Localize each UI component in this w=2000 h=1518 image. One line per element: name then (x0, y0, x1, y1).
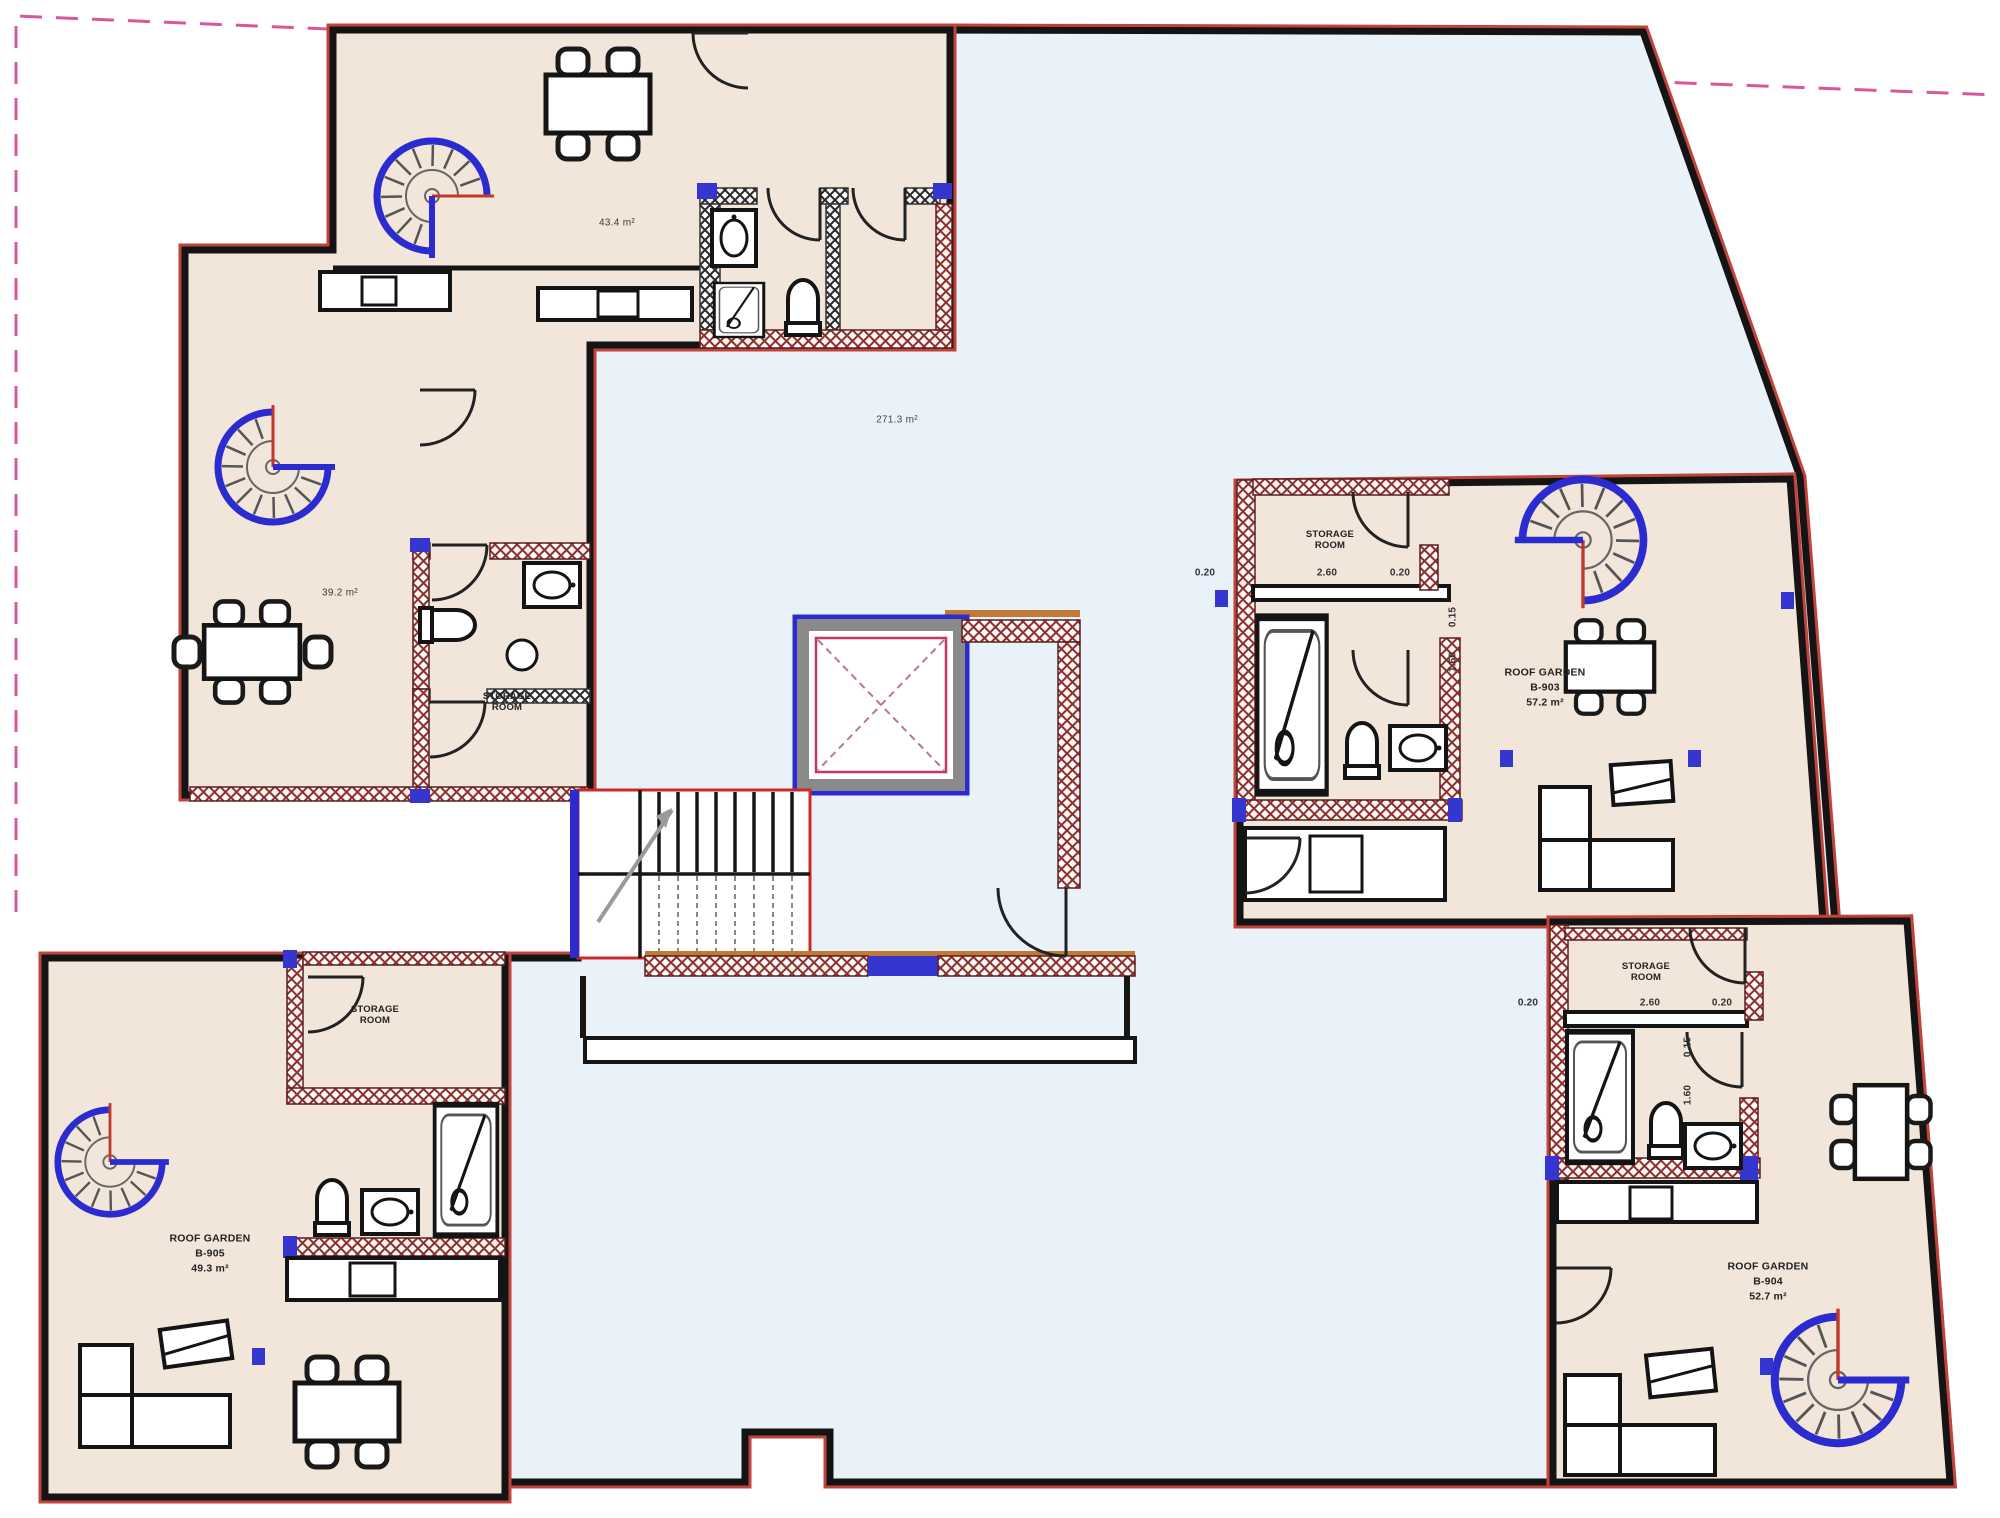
wall-cap (1232, 798, 1246, 822)
toilet-icon (786, 280, 820, 335)
toilet-icon (1345, 723, 1379, 778)
column (252, 1348, 265, 1365)
storage-room-label: STORAGE ROOM (339, 1004, 411, 1026)
unit-label-b903: ROOF GARDEN B-903 57.2 m² (1490, 666, 1600, 711)
shower-icon (435, 1105, 498, 1236)
wall-cap (283, 950, 297, 968)
wall-cap (410, 789, 430, 803)
dimension-label: 0.20 (1518, 998, 1538, 1009)
area-label-top-terrace: 43.4 m² (599, 218, 635, 229)
area-label-courtyard: 271.3 m² (876, 415, 918, 426)
unit-area: 49.3 m² (155, 1262, 265, 1277)
toilet-icon (315, 1180, 349, 1235)
column (1215, 590, 1228, 607)
unit-name: ROOF GARDEN (1490, 666, 1600, 681)
dimension-label-vertical: 0.15 (1448, 607, 1459, 627)
unit-name: ROOF GARDEN (155, 1232, 265, 1247)
wall-cap (283, 1236, 297, 1258)
wall-cap (410, 538, 430, 552)
column (1688, 750, 1701, 767)
shower-icon (714, 283, 764, 337)
unit-area: 52.7 m² (1713, 1290, 1823, 1305)
coffee-table (1611, 761, 1674, 805)
column (1500, 750, 1513, 767)
wall-cap (1448, 798, 1462, 822)
shower-icon (1567, 1032, 1633, 1163)
toilet-icon (420, 608, 475, 642)
column (1781, 592, 1794, 609)
toilet-icon (1649, 1103, 1683, 1158)
floor-plan-drawing (0, 0, 2000, 1518)
dimension-label: 0.20 (1712, 998, 1732, 1009)
unit-label-b904: ROOF GARDEN B-904 52.7 m² (1713, 1260, 1823, 1305)
wall-cap (1545, 1156, 1559, 1180)
storage-room-label: STORAGE ROOM (1610, 961, 1682, 983)
storage-room-label: STORAGE ROOM (1294, 529, 1366, 551)
sink-icon (1685, 1124, 1741, 1168)
sink-icon (712, 210, 756, 266)
dimension-label: 2.60 (1317, 568, 1337, 579)
staircase (570, 790, 810, 958)
unit-code: B-904 (1713, 1275, 1823, 1290)
sink-icon (362, 1190, 418, 1234)
dimension-label-vertical: 1.60 (1683, 1085, 1694, 1105)
sink-icon (1390, 726, 1446, 770)
dimension-label: 0.20 (1195, 568, 1215, 579)
dimension-label: 0.20 (1390, 568, 1410, 579)
unit-code: B-903 (1490, 681, 1600, 696)
wall-cap (933, 183, 952, 199)
sink-icon (524, 563, 580, 607)
column (1760, 1358, 1773, 1375)
unit-label-b905: ROOF GARDEN B-905 49.3 m² (155, 1232, 265, 1277)
dimension-label-vertical: 0.15 (1683, 1037, 1694, 1057)
coffee-table (1646, 1349, 1716, 1398)
unit-area: 57.2 m² (1490, 696, 1600, 711)
roof-floor-plan: 43.4 m² 271.3 m² 39.2 m² STORAGE ROOM ST… (0, 0, 2000, 1518)
wall-cap (697, 183, 717, 199)
shower-icon (1257, 617, 1326, 793)
water-heater-icon (507, 640, 537, 670)
unit-code: B-905 (155, 1247, 265, 1262)
coffee-table (160, 1320, 233, 1367)
area-label-left-terrace: 39.2 m² (322, 588, 358, 599)
storage-room-label: STORAGE ROOM (471, 691, 543, 713)
dimension-label-vertical: 1.60 (1448, 652, 1459, 672)
dimension-label: 2.60 (1640, 998, 1660, 1009)
unit-name: ROOF GARDEN (1713, 1260, 1823, 1275)
